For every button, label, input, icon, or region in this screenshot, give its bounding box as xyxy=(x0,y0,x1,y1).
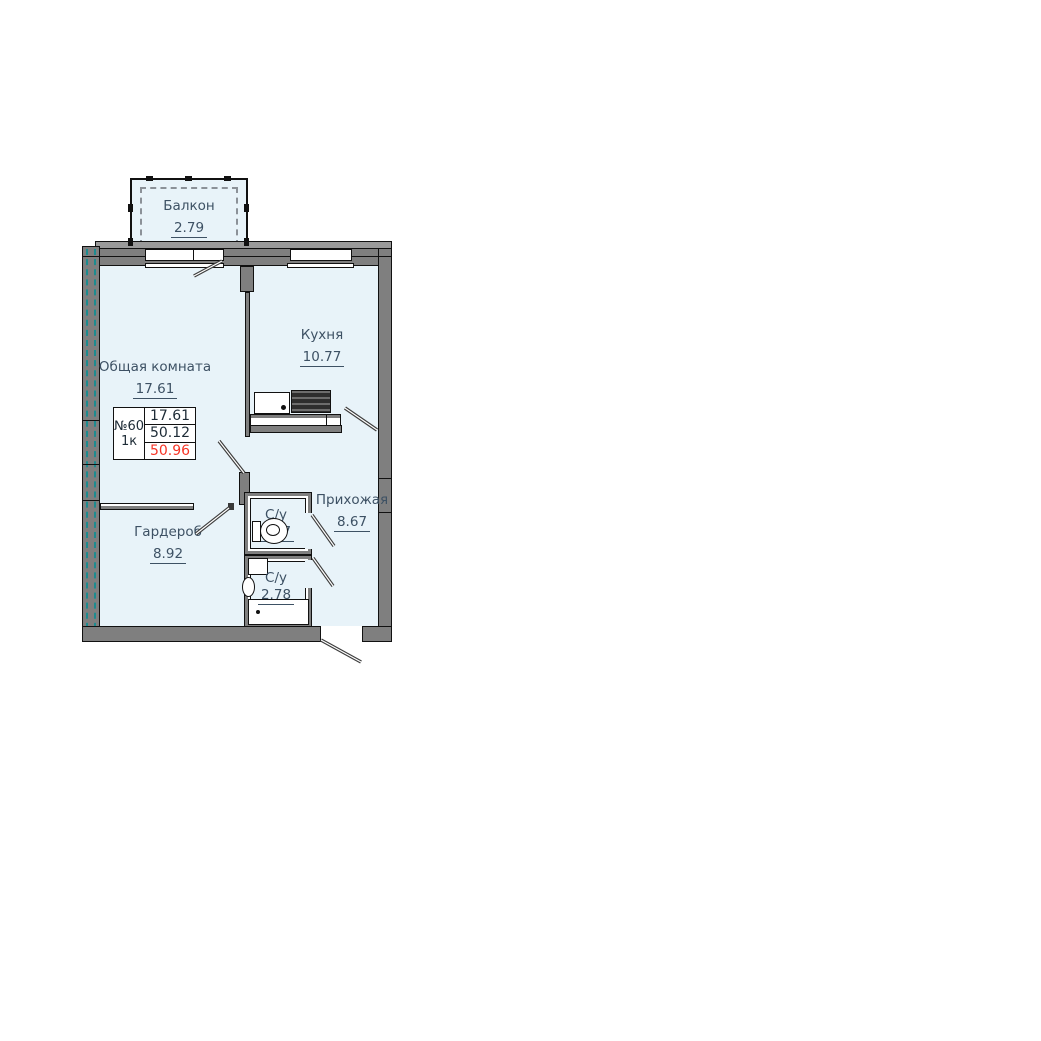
bathroom-large-name: С/у xyxy=(246,571,306,586)
apartment-number: №60 xyxy=(114,419,144,434)
apartment-info-table: №60 1к 17.61 50.12 50.96 xyxy=(113,407,196,460)
hallway-area: 8.67 xyxy=(334,515,370,532)
glazing-mullion-mark xyxy=(185,176,192,181)
wall-joint xyxy=(82,500,100,501)
wardrobe-area: 8.92 xyxy=(150,547,186,564)
balcony-name: Балкон xyxy=(139,199,239,214)
glazing-mullion-mark xyxy=(128,204,133,212)
wall-joint xyxy=(82,420,100,421)
wall-bottom-right xyxy=(362,626,392,642)
wall-left xyxy=(82,246,100,642)
living-room-area: 17.61 xyxy=(133,382,178,399)
kitchen-label: Кухня 10.77 xyxy=(272,328,372,367)
glazing-mullion-mark xyxy=(146,176,153,181)
hallway-name: Прихожая xyxy=(302,493,402,508)
entrance-opening xyxy=(321,626,362,642)
bathroom-large-door-gap xyxy=(305,560,313,588)
bathroom-large-label: С/у 2.78 xyxy=(246,571,306,605)
wardrobe-label: Гардероб 8.92 xyxy=(118,525,218,564)
insulation-line xyxy=(94,249,96,639)
kitchen-window-sill xyxy=(287,263,354,268)
balcony-door-unit xyxy=(193,249,224,261)
living-window-sill xyxy=(145,263,224,268)
floor-plan-canvas: №60 1к 17.61 50.12 50.96 Балкон 2.79 Общ… xyxy=(0,0,1041,1041)
glazing-mullion-mark xyxy=(224,176,231,181)
glazing-mullion-mark xyxy=(128,238,133,246)
glazing-mullion-mark xyxy=(244,204,249,212)
apartment-areas-column: 17.61 50.12 50.96 xyxy=(145,408,195,459)
partition-wardrobe-post xyxy=(228,503,234,510)
kitchen-counter-end xyxy=(326,414,341,426)
kitchen-window xyxy=(290,249,352,261)
wall-bottom-left xyxy=(82,626,321,642)
living-area-value: 17.61 xyxy=(145,408,195,425)
apartment-number-cell: №60 1к xyxy=(114,408,145,459)
kitchen-name: Кухня xyxy=(272,328,372,343)
wall-right xyxy=(378,248,392,642)
usable-area-value: 50.12 xyxy=(145,425,195,442)
balcony-label: Балкон 2.79 xyxy=(139,199,239,238)
apartment-rooms-count: 1к xyxy=(121,434,137,449)
wardrobe-name: Гардероб xyxy=(118,525,218,540)
partition-wardrobe xyxy=(100,503,194,510)
living-room-window xyxy=(145,249,194,261)
wall-joint xyxy=(378,478,392,479)
wall-joint xyxy=(82,464,100,465)
total-area-value: 50.96 xyxy=(145,443,195,459)
toilet-icon xyxy=(260,518,288,544)
hallway-label: Прихожая 8.67 xyxy=(302,493,402,532)
bathroom-large-area: 2.78 xyxy=(258,588,294,605)
insulation-line xyxy=(86,249,88,639)
living-room-name: Общая комната xyxy=(95,360,215,375)
kitchen-sink-icon xyxy=(254,392,290,414)
partition-kitchen-hall xyxy=(250,425,342,433)
partition-living-kitchen-stub xyxy=(240,266,254,292)
entrance-door-swing xyxy=(321,640,361,662)
living-room-label: Общая комната 17.61 xyxy=(95,360,215,399)
glazing-mullion-mark xyxy=(244,238,249,246)
balcony-area: 2.79 xyxy=(171,221,207,238)
kitchen-area: 10.77 xyxy=(300,350,345,367)
stove-icon xyxy=(291,390,331,413)
